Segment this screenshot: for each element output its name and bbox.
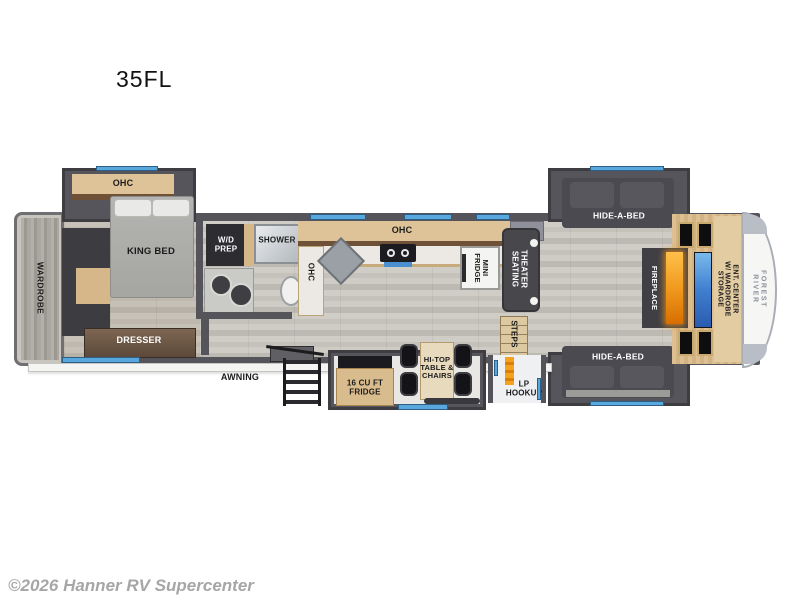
theater-seating-label: THEATER SEATING (510, 250, 527, 289)
cupholder-2 (530, 297, 538, 305)
front-cap-trim-top (743, 214, 767, 234)
dinette-window (398, 404, 448, 410)
steps-label: STEPS (509, 320, 518, 347)
wd-prep-trim (244, 224, 254, 266)
wardrobe-label: WARDROBE (35, 262, 44, 314)
kitchen-window-3 (476, 214, 510, 220)
bedroom-window (96, 166, 158, 171)
shower-label: SHOWER (258, 237, 295, 246)
ent-cabinet-bottom-2 (697, 330, 713, 356)
cooktop (380, 244, 416, 262)
hall-wall-stub (201, 319, 209, 355)
hab-top-cushion-1 (570, 182, 614, 208)
entry-rail-right (318, 358, 321, 406)
hide-a-bed-bottom-window (590, 401, 664, 406)
awning-label: AWNING (221, 373, 259, 383)
oven-accent (384, 262, 412, 267)
kitchen-ohc-label: OHC (392, 226, 413, 236)
hide-a-bed-bottom-label: HIDE-A-BED (592, 352, 644, 361)
bedroom-bath-wall (196, 221, 203, 315)
bath-bottom-wall (196, 312, 292, 319)
fridge-top (338, 356, 392, 368)
ent-cabinet-bottom-1 (678, 330, 694, 356)
brand-label: FOREST RIVER (751, 269, 766, 310)
fireplace-glow (666, 252, 683, 324)
bedroom-cabinet-shelf (76, 268, 110, 304)
hide-a-bed-top-window (590, 166, 664, 171)
hab-top-cushion-2 (620, 182, 664, 208)
cupholder-1 (530, 239, 538, 247)
burner-2 (401, 249, 409, 257)
kitchen-window-2 (404, 214, 452, 220)
fridge-16-label: 16 CU FT FRIDGE (347, 379, 383, 396)
fireplace-label: FIREPLACE (650, 266, 658, 310)
ent-center-label: ENT. CENTER W/ WARDROBE STORAGE (716, 253, 739, 326)
pillow-left (114, 199, 152, 217)
tv-screen (694, 252, 712, 328)
ent-cabinet-top-1 (678, 222, 694, 248)
floorplan-page: 35FL WARDROBE OHC KING BED DRESSER W/D P… (0, 0, 800, 600)
mini-fridge-handle (462, 254, 466, 282)
hide-a-bed-top-label: HIDE-A-BED (593, 211, 645, 220)
kitchen-window-1 (310, 214, 366, 220)
ent-cabinet-top-2 (697, 222, 713, 248)
entry-steps (286, 360, 318, 406)
hab-bottom-cushion-1 (570, 366, 614, 388)
lp-bay-accent-1 (494, 360, 498, 376)
king-bed-label: KING BED (127, 247, 175, 257)
kitchen-ohc-side-label: OHC (306, 263, 315, 281)
burner-1 (387, 249, 395, 257)
hab-bottom-cushion-2 (620, 366, 664, 388)
chair-3 (454, 344, 472, 368)
bedroom-ohc-label: OHC (113, 179, 134, 189)
vanity-sink-2 (229, 283, 253, 307)
pillow-right (152, 199, 190, 217)
chair-2 (400, 372, 418, 396)
front-cap-trim-bottom (743, 344, 767, 364)
model-title: 35FL (116, 66, 172, 93)
dresser-label: DRESSER (117, 336, 162, 346)
hab-bottom-footboard (566, 390, 670, 397)
wd-prep-label: W/D PREP (215, 236, 238, 253)
hi-top-table-label: HI-TOP TABLE & CHAIRS (420, 356, 453, 380)
chair-4 (454, 372, 472, 396)
chair-1 (400, 344, 418, 368)
lp-bay-accent-2 (537, 378, 541, 400)
mini-fridge-label: MINI FRIDGE (473, 253, 489, 283)
watermark: ©2026 Hanner RV Supercenter (8, 576, 254, 596)
